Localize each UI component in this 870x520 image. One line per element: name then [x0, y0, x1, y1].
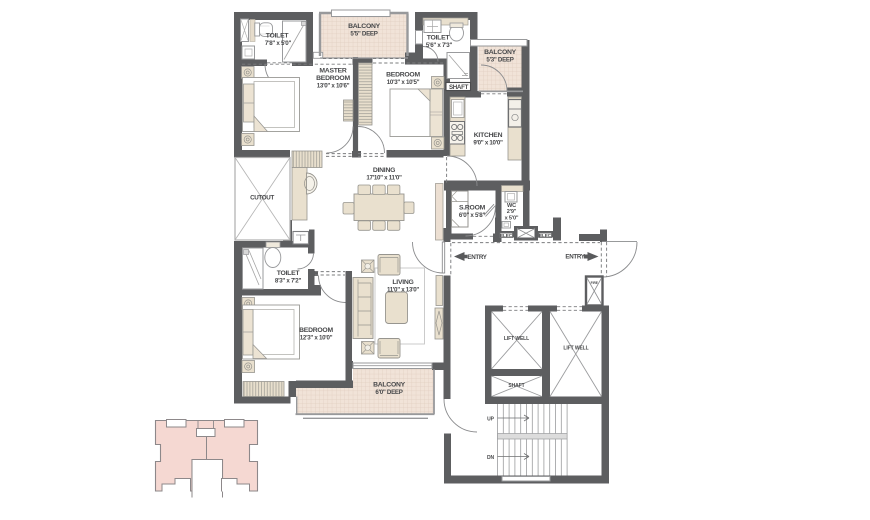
svg-text:MASTER: MASTER [319, 68, 347, 75]
svg-text:KITCHEN: KITCHEN [474, 132, 503, 139]
svg-text:13'0" x 10'6": 13'0" x 10'6" [317, 83, 350, 90]
svg-text:DINING: DINING [373, 167, 395, 174]
svg-text:TOILET: TOILET [266, 33, 290, 40]
svg-text:LIFT WELL: LIFT WELL [504, 336, 529, 342]
svg-text:ELEC: ELEC [500, 233, 513, 238]
svg-text:ELEC: ELEC [539, 233, 552, 238]
svg-text:ENTRY: ENTRY [467, 254, 487, 261]
svg-text:9'0" x 10'0": 9'0" x 10'0" [473, 140, 503, 147]
svg-text:10'3" x 10'5": 10'3" x 10'5" [387, 79, 420, 86]
svg-text:BEDROOM: BEDROOM [299, 327, 333, 334]
svg-text:DN: DN [487, 455, 495, 461]
svg-text:BEDROOM: BEDROOM [316, 75, 350, 82]
svg-text:ENTRY: ENTRY [565, 254, 585, 261]
svg-text:8'3" x 7'2": 8'3" x 7'2" [275, 278, 302, 285]
svg-text:17'10" x 11'0": 17'10" x 11'0" [366, 175, 402, 182]
svg-text:6'0" x 5'8": 6'0" x 5'8" [459, 212, 486, 219]
svg-text:LIVING: LIVING [392, 279, 413, 286]
svg-text:6'0" DEEP: 6'0" DEEP [375, 389, 402, 396]
svg-text:BALCONY: BALCONY [373, 382, 406, 389]
svg-text:BALCONY: BALCONY [348, 23, 381, 30]
svg-text:7'8" x 5'0": 7'8" x 5'0" [265, 40, 292, 47]
svg-text:S.ROOM: S.ROOM [459, 205, 486, 212]
svg-text:BEDROOM: BEDROOM [386, 72, 420, 79]
svg-text:11'0" x 13'0": 11'0" x 13'0" [387, 287, 419, 294]
svg-text:FIRE: FIRE [591, 281, 598, 285]
svg-text:5'5" DEEP: 5'5" DEEP [350, 31, 377, 38]
svg-text:SHAFT: SHAFT [508, 383, 524, 389]
svg-text:SHAFT: SHAFT [449, 84, 469, 91]
svg-text:TOILET: TOILET [277, 270, 301, 277]
svg-text:x 5'0": x 5'0" [505, 216, 519, 222]
svg-text:CUTOUT: CUTOUT [250, 195, 274, 202]
svg-text:2'9": 2'9" [507, 209, 517, 215]
svg-text:LIFT WELL: LIFT WELL [563, 346, 588, 352]
svg-text:12'3" x 10'0": 12'3" x 10'0" [300, 335, 333, 342]
svg-text:5'3" DEEP: 5'3" DEEP [486, 57, 513, 64]
svg-text:BALCONY: BALCONY [484, 49, 517, 56]
svg-text:5'6" x 7'3": 5'6" x 7'3" [426, 42, 453, 49]
svg-text:UP: UP [487, 417, 495, 423]
svg-text:TOILET: TOILET [427, 35, 451, 42]
